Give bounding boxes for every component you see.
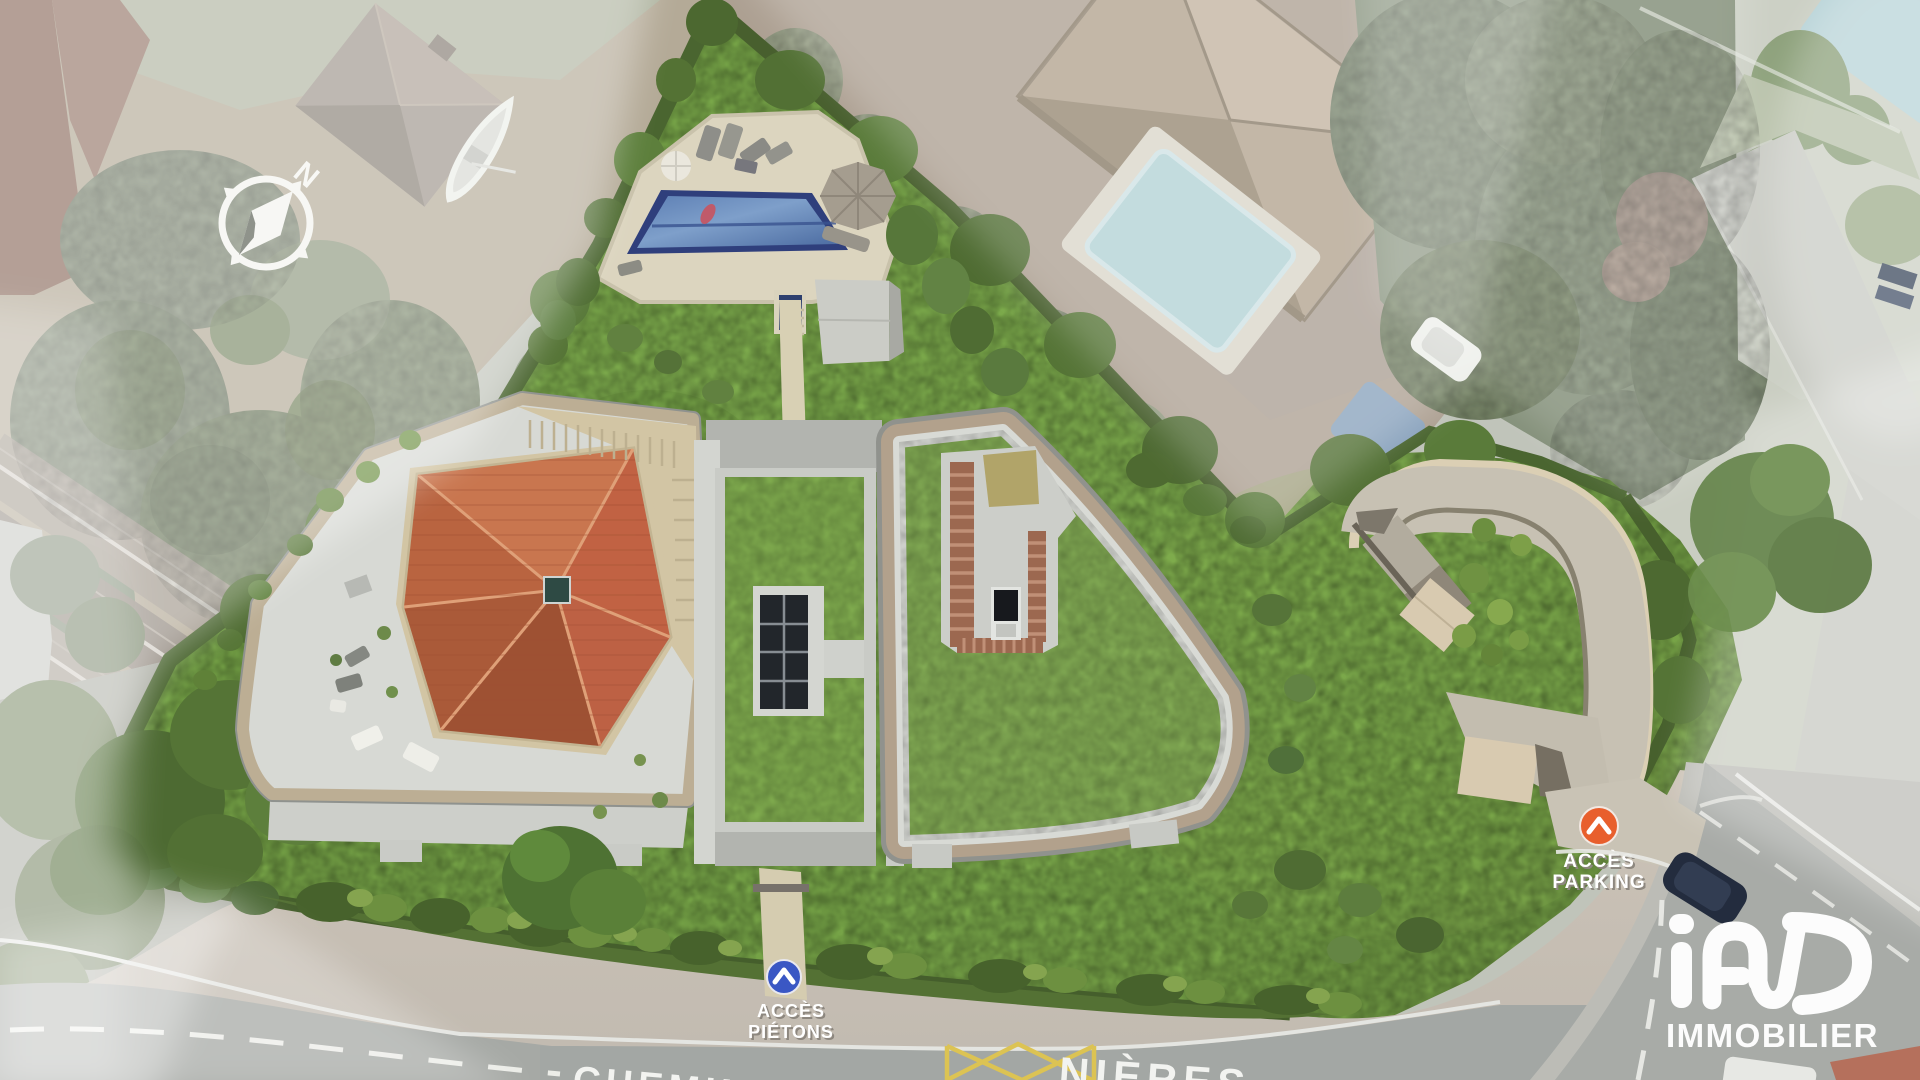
svg-text:PARKING: PARKING xyxy=(1552,872,1645,893)
svg-text:ACCÈS: ACCÈS xyxy=(757,1000,825,1021)
svg-text:IMMOBILIER: IMMOBILIER xyxy=(1666,1017,1879,1054)
svg-text:PIÉTONS: PIÉTONS xyxy=(748,1021,834,1042)
